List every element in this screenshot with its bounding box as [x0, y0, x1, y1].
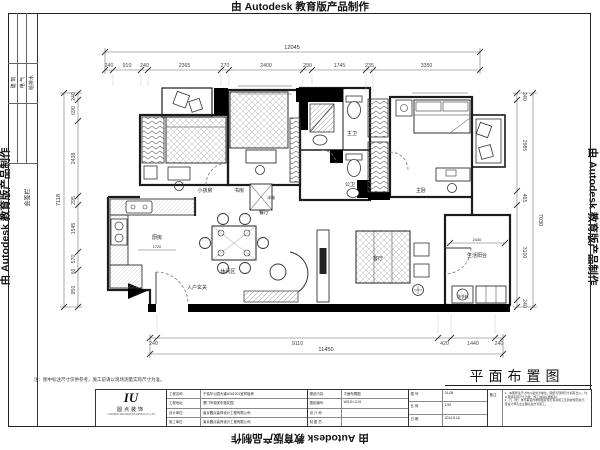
- field-label: 施工单位:: [167, 418, 201, 426]
- dim-label: 2985: [521, 140, 527, 152]
- dim-label: 2440: [473, 238, 481, 242]
- field-value: 千禧华公园大道A2#1201室样板房: [201, 390, 307, 398]
- table-row: 图纸内容: 平面布置图: [308, 390, 408, 399]
- table-row: 比 例: 1:50: [409, 402, 487, 414]
- dim-label: 1745: [334, 63, 346, 69]
- room-label-dining: 餐厅: [259, 209, 269, 216]
- dim-label: 295: [71, 196, 77, 205]
- dim-label: 910: [123, 63, 132, 69]
- field-value: 2014.5.16: [443, 415, 487, 426]
- room-label-kitchen: 厨房: [152, 234, 162, 241]
- room-label-kids: 小孩房: [197, 187, 212, 194]
- bed: [414, 100, 470, 133]
- field-value: 01-08: [443, 390, 487, 401]
- room-label-master-bath: 主卫: [347, 130, 357, 137]
- toilet: [348, 160, 361, 177]
- curved-screen: [290, 252, 308, 292]
- remarks-label: 备注: [488, 390, 503, 426]
- label-washer: 洗衣机: [457, 294, 469, 299]
- field-value: 1:50: [443, 402, 487, 413]
- dim-label: 290: [303, 63, 312, 69]
- table-row: 日 期: 2014.5.16: [409, 415, 487, 426]
- chair: [240, 214, 251, 225]
- hall-wardrobes: [368, 99, 388, 192]
- field-label: 制 图 员:: [308, 418, 342, 426]
- dim-label: 465: [521, 194, 527, 203]
- field-value: 南京圆点装饰设计工程有限公司: [201, 409, 307, 417]
- living-room-furniture: [317, 230, 429, 302]
- field-label: 图纸编号:: [308, 399, 342, 407]
- study-furniture: [230, 92, 300, 182]
- dim-label: 240: [140, 63, 149, 69]
- dim-label: 240: [521, 299, 527, 308]
- dim-label: 240: [71, 92, 77, 101]
- armchair: [414, 243, 429, 256]
- field-value: [342, 418, 408, 426]
- dim-label: 9110: [292, 341, 303, 347]
- label-fridge: 冰箱: [267, 195, 275, 200]
- remarks-text: 1、本图所注尺寸均以毫米为单位，图纸与现场尺寸如有出入，均以现场实际尺寸为准，施…: [503, 390, 591, 426]
- company-subtitle: YUANDIAN DECORATION DESIGN CO.,LTD: [100, 413, 163, 416]
- table-row: 工程名称: 千禧华公园大道A2#1201室样板房: [167, 390, 307, 399]
- table-row: 设计单位: 南京圆点装饰设计工程有限公司: [167, 409, 307, 418]
- desk: [246, 150, 276, 163]
- master-bedroom-furniture: [396, 100, 493, 193]
- remarks-line: 2、凡（含）未尽事宜均参照国家现行有关施工及验收规范执行，经设计师及业主确认后方…: [505, 399, 589, 406]
- door-swings: [156, 150, 471, 304]
- bay-armchair: [476, 122, 491, 137]
- drawing-title-underline: [445, 385, 592, 386]
- balcony-cabinet: [476, 286, 506, 303]
- room-label-guest-bath: 公卫: [345, 182, 355, 188]
- room-label-entry: 入户玄关: [187, 284, 207, 291]
- bed: [166, 117, 226, 163]
- wardrobe: [142, 117, 164, 163]
- dim-label: 7030: [537, 214, 543, 226]
- dim-label: 3350: [421, 63, 433, 69]
- company-logo-mark: IU: [96, 390, 166, 406]
- field-value: [342, 409, 408, 417]
- tv: [320, 248, 327, 274]
- room-label-master-bedroom: 主卧: [416, 187, 426, 194]
- dim-label: 240: [495, 341, 504, 347]
- field-label: 图 号:: [409, 390, 443, 401]
- field-label: 图纸内容:: [308, 390, 342, 398]
- field-label: 比 例:: [409, 402, 443, 413]
- approval-info-table: 图 号: 01-08 比 例: 1:50 日 期: 2014.5.16: [409, 390, 488, 426]
- dim-label: 235: [365, 63, 374, 69]
- field-label: 日 期:: [409, 415, 443, 426]
- master-bath-fixtures: [310, 96, 362, 145]
- plant-icon: [173, 91, 203, 112]
- dim-label: 3100: [521, 247, 527, 259]
- field-value: 平面布置图: [342, 390, 408, 398]
- room-label-living: 客厅: [373, 255, 383, 262]
- chair: [200, 238, 211, 249]
- dim-label: 240: [149, 341, 158, 347]
- dresser: [396, 100, 412, 116]
- dim-label: 60: [71, 269, 77, 275]
- dining-furniture: [200, 214, 269, 274]
- dim-label: 240: [105, 63, 114, 69]
- dim-label: 2365: [179, 63, 191, 69]
- dim-label: 2400: [260, 63, 272, 69]
- sink: [126, 201, 152, 213]
- drawing-info-table: 图纸内容: 平面布置图 图纸编号: WGJH-3-01 设 计 师: 制 图 员…: [308, 390, 409, 426]
- cabinet: [144, 166, 157, 179]
- chair: [448, 184, 457, 193]
- stove: [111, 219, 127, 245]
- bay-armchair: [479, 145, 494, 160]
- chair: [240, 263, 251, 274]
- dim-label: 1545: [71, 223, 77, 235]
- leisure-furniture: [270, 252, 308, 292]
- toilet: [348, 102, 361, 119]
- chair: [218, 214, 229, 225]
- dim-label: 2438: [71, 153, 77, 165]
- tea-table: [270, 264, 286, 280]
- table-row: 制 图 员:: [308, 418, 408, 426]
- dim-label: 1720: [153, 245, 161, 249]
- table-row: 图 号: 01-08: [409, 390, 487, 402]
- dim-label: 950: [71, 286, 77, 295]
- chair: [258, 238, 269, 249]
- field-label: 工程名称:: [167, 390, 201, 398]
- field-label: 设计单位:: [167, 409, 201, 417]
- tatami-bed: [230, 92, 288, 148]
- chair: [256, 166, 265, 175]
- table-row: 施工单位: 南京圆点装饰设计工程有限公司: [167, 418, 307, 426]
- armchair: [414, 264, 429, 277]
- entry-mat: [244, 291, 298, 302]
- remarks-cell: 备注 1、本图所注尺寸均以毫米为单位，图纸与现场尺寸如有出入，均以现场实际尺寸为…: [488, 390, 591, 426]
- counter: [110, 265, 142, 288]
- company-name: 圆点装饰: [96, 406, 166, 413]
- field-label: 工程地址:: [167, 399, 201, 407]
- sink: [347, 189, 359, 198]
- drawing-title: 平面布置图: [442, 366, 592, 386]
- drawing-note: 注：图中标注尺寸仅供参考，施工前请以现场测量实际尺寸为准。: [34, 377, 165, 383]
- field-value: 南京圆点装饰设计工程有限公司: [201, 418, 307, 426]
- desk: [168, 167, 190, 180]
- dim-label: 270: [221, 63, 230, 69]
- dim-label: 7118: [56, 194, 62, 206]
- dim-label: 11450: [318, 347, 333, 353]
- project-info-table: 工程名称: 千禧华公园大道A2#1201室样板房 工程地址: 厦门市湖滨东路花园…: [167, 390, 308, 426]
- field-value: 厦门市湖滨东路花园: [201, 399, 307, 407]
- title-block: IU 圆点装饰 YUANDIAN DECORATION DESIGN CO.,L…: [95, 389, 592, 427]
- table-row: 图纸编号: WGJH-3-01: [308, 399, 408, 408]
- table-row: 设 计 师:: [308, 409, 408, 418]
- field-label: 设 计 师:: [308, 409, 342, 417]
- room-label-study: 书房: [234, 187, 244, 194]
- counter: [110, 199, 195, 215]
- dim-label: 12045: [284, 45, 300, 51]
- kids-room-furniture: [142, 91, 226, 190]
- room-label-leisure: 休闲区: [220, 268, 235, 275]
- dim-label: 1440: [467, 341, 479, 347]
- wardrobe: [290, 118, 300, 182]
- company-logo: IU 圆点装饰 YUANDIAN DECORATION DESIGN CO.,L…: [96, 390, 167, 426]
- room-label-balcony: 生活阳台: [467, 252, 487, 259]
- dim-label: 570: [71, 255, 77, 264]
- sink: [313, 135, 327, 145]
- dim-label: 420: [440, 341, 449, 347]
- table-row: 工程地址: 厦门市湖滨东路花园: [167, 399, 307, 408]
- field-value: WGJH-3-01: [342, 399, 408, 407]
- dim-label: 240: [521, 92, 527, 101]
- dim-label: 690: [71, 106, 77, 115]
